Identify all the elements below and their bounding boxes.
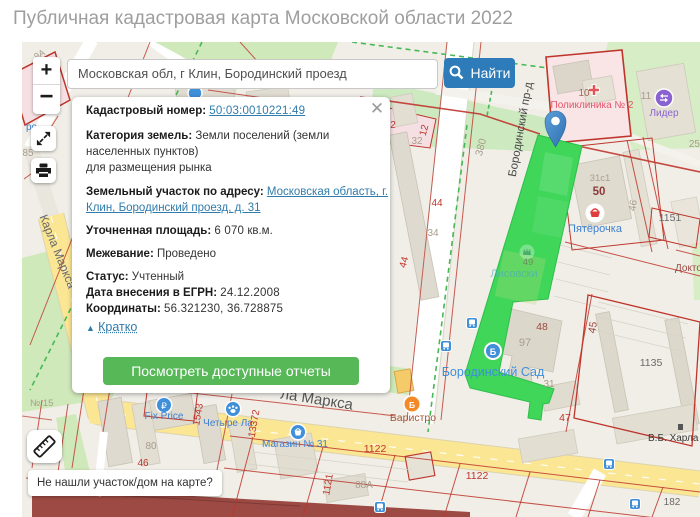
svg-text:Fix Price: Fix Price xyxy=(145,411,184,422)
svg-text:Магазин № 31: Магазин № 31 xyxy=(262,439,328,450)
svg-text:31: 31 xyxy=(543,379,555,390)
svg-text:10: 10 xyxy=(578,88,590,99)
svg-text:50: 50 xyxy=(593,186,606,198)
svg-text:2: 2 xyxy=(390,120,396,131)
svg-text:45: 45 xyxy=(586,321,600,335)
svg-text:47: 47 xyxy=(559,412,571,424)
svg-text:Четыре Ла: Четыре Ла xyxy=(203,418,253,429)
svg-text:32: 32 xyxy=(411,136,423,147)
svg-text:80: 80 xyxy=(145,441,157,452)
svg-text:Бородинский Сад: Бородинский Сад xyxy=(442,365,545,379)
svg-text:Баристро: Баристро xyxy=(390,412,436,424)
svg-text:Лисовски: Лисовски xyxy=(490,268,537,280)
svg-text:97: 97 xyxy=(519,337,531,349)
svg-text:Пятёрочка: Пятёрочка xyxy=(568,223,623,235)
svg-text:₽: ₽ xyxy=(161,401,167,411)
svg-text:В.Б. Харла: В.Б. Харла xyxy=(648,433,699,444)
svg-text:182: 182 xyxy=(664,497,681,508)
svg-text:31с1: 31с1 xyxy=(590,173,611,184)
svg-text:46: 46 xyxy=(137,458,149,469)
svg-text:11: 11 xyxy=(641,91,652,102)
svg-text:1151: 1151 xyxy=(659,212,682,224)
svg-text:44: 44 xyxy=(431,198,443,209)
svg-text:34: 34 xyxy=(427,228,439,239)
svg-text:1122: 1122 xyxy=(364,443,387,455)
svg-text:Доктор: Доктор xyxy=(675,263,700,274)
svg-text:48: 48 xyxy=(536,321,548,333)
svg-text:1122: 1122 xyxy=(466,470,489,482)
svg-text:Б: Б xyxy=(490,347,497,357)
svg-text:49: 49 xyxy=(523,257,534,268)
svg-text:Лидер: Лидер xyxy=(649,108,679,119)
svg-text:1135: 1135 xyxy=(640,357,663,369)
svg-text:Б: Б xyxy=(409,400,415,410)
svg-text:88А: 88А xyxy=(355,480,373,491)
svg-text:25: 25 xyxy=(689,139,700,150)
svg-text:Поликлиника № 2: Поликлиника № 2 xyxy=(551,100,634,111)
